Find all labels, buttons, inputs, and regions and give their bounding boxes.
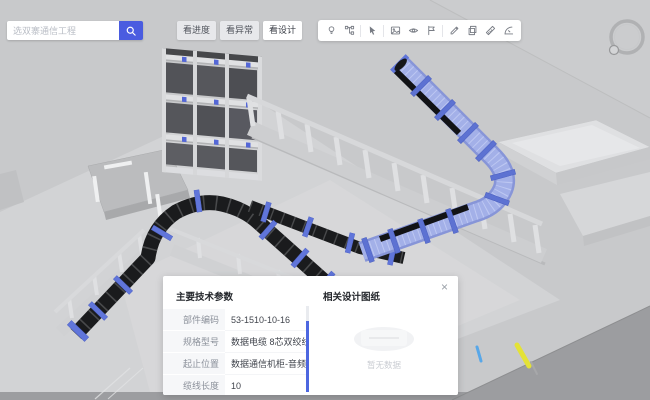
snapshot-icon [390, 25, 401, 36]
scrollbar-thumb[interactable] [306, 321, 309, 392]
param-value: 10 [225, 375, 306, 395]
measure-ruler-icon [485, 25, 496, 36]
copy-icon [467, 25, 478, 36]
view-mode-progress[interactable]: 看进度 [177, 21, 216, 40]
search-icon [125, 25, 137, 37]
model-tree-button[interactable] [342, 23, 356, 38]
bulb-button[interactable] [324, 23, 338, 38]
model-tree-icon [344, 25, 355, 36]
param-label: 部件编码 [163, 309, 225, 331]
param-label: 规格型号 [163, 331, 225, 353]
view-mode-abnormal[interactable]: 看异常 [220, 21, 259, 40]
design-drawings-title: 相关设计图纸 [310, 276, 458, 309]
component-detail-panel: × 主要技术参数 部件编码 53-1510-10-16 规格型号 数据电缆 8芯… [163, 276, 458, 395]
tech-params-section: 主要技术参数 部件编码 53-1510-10-16 规格型号 数据电缆 8芯双绞… [163, 276, 306, 395]
param-row: 部件编码 53-1510-10-16 [163, 309, 306, 331]
search-button[interactable] [119, 21, 143, 40]
tech-params-title: 主要技术参数 [163, 276, 306, 309]
copy-button[interactable] [465, 23, 479, 38]
param-value: 53-1510-10-16 [225, 309, 306, 331]
annotate-button[interactable] [447, 23, 461, 38]
bim-viewer-window: 看进度 看异常 看设计 [0, 0, 650, 400]
equipment-rack-model[interactable] [162, 48, 262, 181]
eye-icon [408, 25, 419, 36]
flag-button[interactable] [424, 23, 438, 38]
view-mode-group: 看进度 看异常 看设计 [177, 21, 302, 40]
compass-knob[interactable] [610, 46, 619, 55]
select-cursor-button[interactable] [365, 23, 379, 38]
angle-button[interactable] [501, 23, 515, 38]
select-cursor-icon [367, 25, 378, 36]
drawings-empty-state: 暂无数据 [310, 311, 458, 381]
param-row: 起止位置 数据通信机柜-音频与数据配— [163, 353, 306, 375]
param-value: 数据通信机柜-音频与数据配— [225, 353, 306, 375]
param-label: 缆线长度 [163, 375, 225, 395]
toolbar-divider [442, 25, 443, 37]
flag-icon [426, 25, 437, 36]
param-value: 数据电缆 8芯双绞线 非屏蔽 — [225, 331, 306, 353]
design-drawings-section: 相关设计图纸 暂无数据 [310, 276, 458, 395]
param-label: 起止位置 [163, 353, 225, 375]
empty-illustration [349, 321, 419, 355]
toolbar-divider [383, 25, 384, 37]
measure-button[interactable] [483, 23, 497, 38]
search-bar [7, 21, 143, 40]
viewer-toolbar [318, 20, 521, 41]
view-mode-design[interactable]: 看设计 [263, 21, 302, 40]
eye-button[interactable] [406, 23, 420, 38]
snapshot-button[interactable] [388, 23, 402, 38]
param-row: 缆线长度 10 [163, 375, 306, 395]
angle-icon [503, 25, 514, 36]
toolbar-divider [360, 25, 361, 37]
params-scrollbar[interactable] [306, 306, 309, 392]
drawings-empty-text: 暂无数据 [367, 359, 401, 371]
param-row: 规格型号 数据电缆 8芯双绞线 非屏蔽 — [163, 331, 306, 353]
bulb-icon [326, 25, 337, 36]
search-input[interactable] [7, 21, 119, 40]
annotate-pencil-icon [449, 25, 460, 36]
